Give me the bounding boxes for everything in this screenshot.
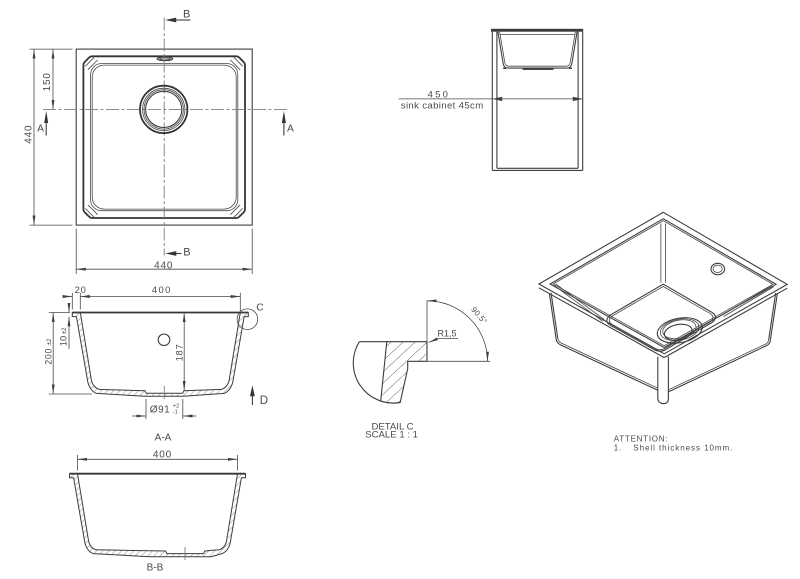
svg-text:sink cabinet 45cm: sink cabinet 45cm	[401, 100, 484, 111]
svg-text:C: C	[256, 303, 264, 314]
svg-text:400: 400	[152, 284, 172, 295]
svg-text:A: A	[37, 124, 44, 135]
svg-text:±2: ±2	[47, 338, 53, 345]
svg-text:1.: 1.	[614, 443, 622, 452]
svg-text:B: B	[183, 8, 190, 20]
svg-text:Shell thickness 10mm.: Shell thickness 10mm.	[633, 443, 733, 452]
svg-text:200: 200	[44, 348, 54, 365]
svg-text:-1: -1	[173, 409, 178, 415]
svg-text:A-A: A-A	[155, 433, 172, 444]
svg-text:440: 440	[154, 260, 173, 271]
svg-text:D: D	[260, 395, 268, 407]
svg-text:150: 150	[42, 72, 53, 91]
svg-text:A: A	[287, 124, 294, 135]
svg-text:B-B: B-B	[147, 562, 164, 573]
svg-text:400: 400	[153, 449, 172, 460]
svg-text:R1,5: R1,5	[438, 328, 457, 338]
svg-text:SCALE 1 : 1: SCALE 1 : 1	[365, 429, 418, 440]
svg-text:187: 187	[173, 344, 184, 362]
svg-text:ATTENTION:: ATTENTION:	[614, 434, 668, 443]
svg-text:90.5°: 90.5°	[469, 305, 489, 326]
svg-text:B: B	[183, 246, 190, 258]
svg-text:10: 10	[57, 336, 68, 346]
svg-text:440: 440	[23, 125, 34, 144]
svg-text:±2: ±2	[62, 327, 68, 334]
svg-text:450: 450	[428, 89, 450, 100]
svg-text:Ø91: Ø91	[150, 405, 170, 416]
